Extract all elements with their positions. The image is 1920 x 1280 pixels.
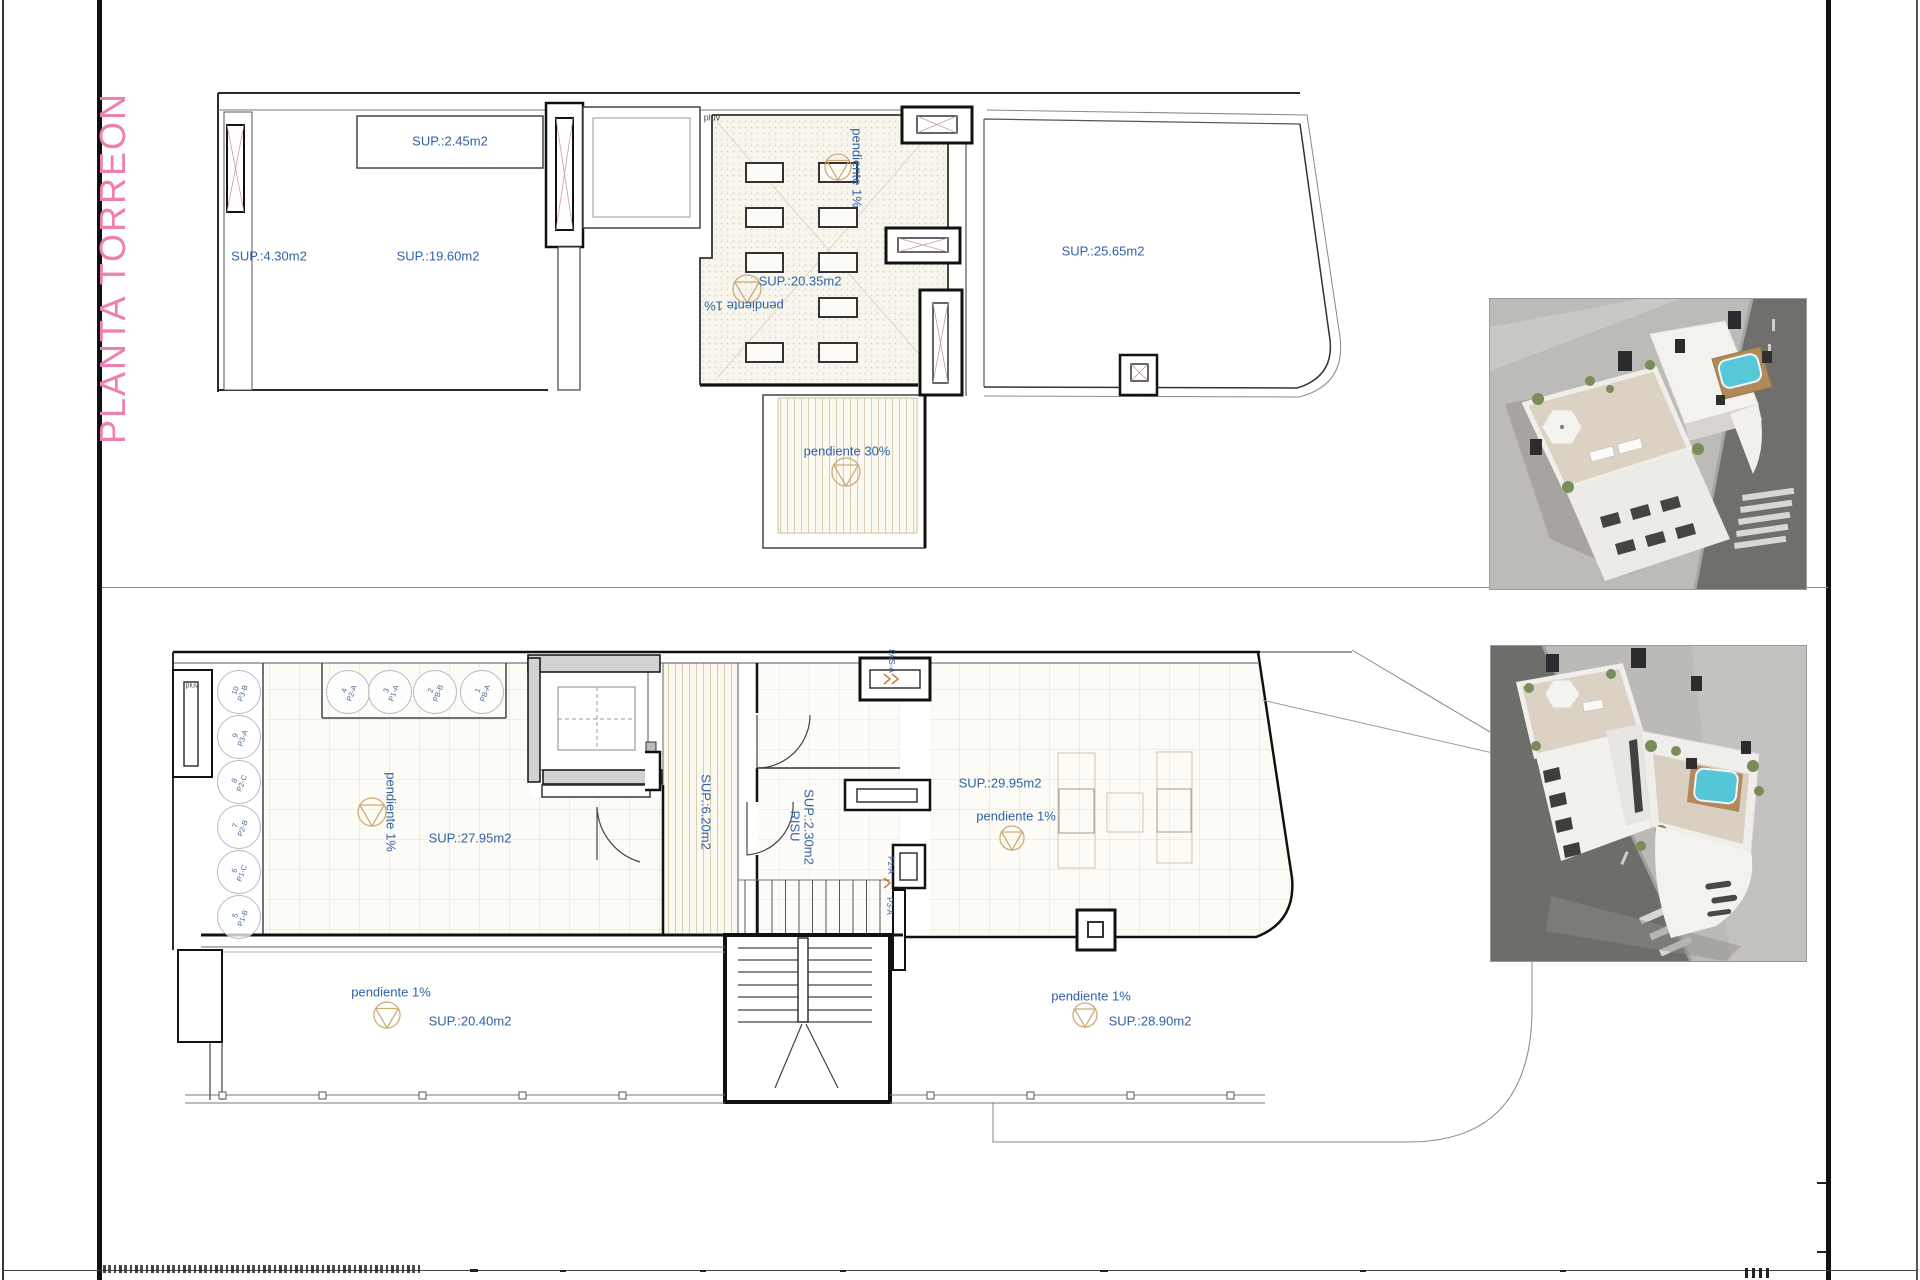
riser-label: RISU (789, 810, 802, 841)
slope-label-ramp: pendiente 30% (804, 445, 891, 458)
bottom-tick (560, 1270, 566, 1272)
storage-circle-5: 5P1-B (217, 895, 261, 939)
bottom-tick (700, 1270, 706, 1272)
pluv-label-upper: pluv (704, 114, 721, 123)
storage-circle-8: 8P2-C (217, 760, 261, 804)
area-label-closet: SUP.:4.30m2 (231, 250, 307, 263)
slope-label-center: pendiente 1% (851, 128, 864, 208)
slope-label-center-2: pendiente 1% (704, 300, 784, 313)
bottom-tick (1759, 1268, 1762, 1278)
storage-circle-2: 2PB-B (413, 670, 457, 714)
bottom-tick (470, 1269, 478, 1272)
lower-plan (173, 650, 1532, 1142)
area-label-bottom-right: SUP.:28.90m2 (1109, 1015, 1192, 1028)
door-label-p2a: P2-A (886, 856, 894, 874)
slope-label-main: pendiente 1% (385, 772, 398, 852)
bottom-tick (1560, 1270, 1566, 1272)
titleblock-strip (103, 1265, 423, 1273)
riser-area-label: SUP.:2.30m2 (803, 789, 816, 865)
bottom-tick (1766, 1268, 1769, 1278)
area-label-shelf: SUP.:2.45m2 (412, 135, 488, 148)
area-label-main: SUP.:27.95m2 (429, 832, 512, 845)
slope-label-bottom-right: pendiente 1% (1051, 990, 1131, 1003)
area-label-right-terrace: SUP.:25.65m2 (1062, 245, 1145, 258)
storage-circle-3: 3P1-A (368, 670, 412, 714)
area-label-center-room: SUP.:20.35m2 (759, 275, 842, 288)
drawing-sheet: PLANTA TORREON (0, 0, 1920, 1280)
storage-circle-10: 10P3-B (217, 670, 261, 714)
door-label-p3a: P3-A (885, 897, 893, 915)
render-aerial-1 (1489, 298, 1807, 590)
storage-circle-1: 1PB-A (460, 670, 504, 714)
storage-circle-4: 4P2-A (326, 670, 370, 714)
slope-label-bottom-left: pendiente 1% (351, 986, 431, 999)
bottom-tick (1100, 1270, 1108, 1272)
area-label-left-room: SUP.:19.60m2 (397, 250, 480, 263)
jacuzzi-pool (1693, 768, 1738, 804)
bottom-tick (1752, 1268, 1755, 1278)
storage-circle-7: 7P2-B (217, 805, 261, 849)
upper-plan (218, 93, 1341, 548)
door-label-pas: PAS-A (887, 649, 895, 672)
render-aerial-2 (1490, 645, 1807, 962)
slope-label-terrace-right: pendiente 1% (976, 810, 1056, 823)
elevator (528, 655, 662, 797)
bottom-tick (840, 1270, 846, 1272)
area-label-bottom-left: SUP.:20.40m2 (429, 1015, 512, 1028)
pluv-label-lower: pluv (186, 683, 199, 690)
storage-circle-6: 6P1-C (217, 850, 261, 894)
bottom-tick (1360, 1270, 1366, 1272)
area-label-terrace-right: SUP.:29.95m2 (959, 777, 1042, 790)
plan-linework (0, 0, 1920, 1280)
bottom-tick (1745, 1268, 1748, 1278)
storage-circle-9: 9P3-A (217, 715, 261, 759)
area-label-corridor: SUP.:6.20m2 (700, 774, 713, 850)
